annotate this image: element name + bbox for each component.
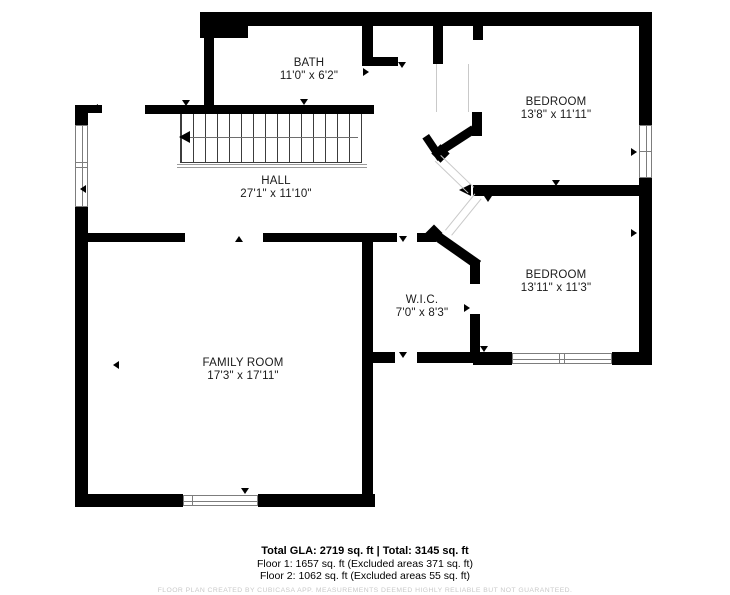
room-label-wic: W.I.C. 7'0" x 8'3" (337, 294, 507, 320)
disclaimer-text: FLOOR PLAN CREATED BY CUBICASA APP. MEAS… (0, 587, 730, 595)
room-name: BEDROOM (471, 269, 641, 282)
wall-bottom-left (75, 494, 183, 507)
wall-hall-bottom-left (88, 233, 185, 242)
wall-stairs-top (145, 105, 374, 114)
window-bedroom1-right (639, 125, 652, 178)
room-dimensions: 13'8" x 11'11" (471, 109, 641, 122)
wall-bedroom1-left-top (473, 26, 483, 40)
staircase-direction-line (186, 137, 358, 138)
room-label-bedroom-top: BEDROOM 13'8" x 11'11" (471, 96, 641, 122)
wall-tick (631, 229, 637, 237)
room-label-bath: BATH 11'0" x 6'2" (224, 57, 394, 83)
window-glass-line (184, 501, 257, 502)
room-name: BATH (224, 57, 394, 70)
staircase-direction-arrow (179, 131, 190, 143)
wall-tick (552, 180, 560, 186)
staircase-edge-line (177, 164, 367, 168)
wall-tick (80, 185, 86, 193)
staircase (180, 114, 362, 163)
window-mullion (76, 167, 87, 168)
window-hall-left (75, 125, 88, 207)
window-mullion (192, 496, 193, 505)
wall-tick (92, 104, 98, 112)
room-label-family-room: FAMILY ROOM 17'3" x 17'11" (158, 357, 328, 383)
room-label-bedroom-middle: BEDROOM 13'11" x 11'3" (471, 269, 641, 295)
wall-tick (301, 17, 309, 23)
room-dimensions: 7'0" x 8'3" (337, 307, 507, 320)
window-glass-line (513, 359, 611, 360)
wall-tick (484, 196, 492, 202)
room-name: BEDROOM (471, 96, 641, 109)
total-area-summary: Total GLA: 2719 sq. ft | Total: 3145 sq.… (0, 545, 730, 558)
wall-tick (399, 352, 407, 358)
room-name: HALL (191, 175, 361, 188)
floor1-area: Floor 1: 1657 sq. ft (Excluded areas 371… (0, 558, 730, 570)
room-name: FAMILY ROOM (158, 357, 328, 370)
wall-corridor-left (433, 26, 443, 64)
window-mullion (559, 354, 560, 363)
window-family-bottom (183, 495, 258, 506)
wall-bedroom2-bottom-left (473, 352, 512, 365)
wall-tick (399, 236, 407, 242)
floor-plan-canvas: BATH 11'0" x 6'2" BEDROOM 13'8" x 11'11"… (0, 0, 730, 595)
window-mullion (640, 151, 651, 152)
wall-bedroom1-bedroom2 (473, 185, 652, 196)
wall-wic-bottom-left (373, 352, 395, 363)
door-opening-corridor (436, 64, 469, 112)
wall-tick (241, 488, 249, 494)
wall-top-left-notch (200, 12, 248, 38)
wall-tick (551, 16, 559, 22)
wall-top (200, 12, 652, 26)
window-bedroom2-bottom (512, 353, 612, 364)
wall-tick (398, 62, 406, 68)
door-opening-bedroom1 (435, 155, 474, 193)
window-glass-line (82, 126, 83, 206)
wall-bottom-right (258, 494, 375, 507)
wall-tick (205, 68, 211, 76)
wall-wic-bottom-right (417, 352, 473, 363)
window-mullion (564, 354, 565, 363)
wall-tick (235, 236, 243, 242)
window-mullion (76, 162, 87, 163)
wall-tick (631, 148, 637, 156)
room-dimensions: 11'0" x 6'2" (224, 70, 394, 83)
footer: Total GLA: 2719 sq. ft | Total: 3145 sq.… (0, 545, 730, 595)
wall-tick (362, 363, 368, 371)
room-label-hall: HALL 27'1" x 11'10" (191, 175, 361, 201)
room-name: W.I.C. (337, 294, 507, 307)
wall-left-lower (75, 207, 88, 507)
wall-tick (182, 100, 190, 106)
wall-hall-bottom-right (263, 233, 363, 242)
wall-tick (480, 346, 488, 352)
wall-tick (300, 99, 308, 105)
floor2-area: Floor 2: 1062 sq. ft (Excluded areas 55 … (0, 570, 730, 582)
wall-wic-top-left (373, 233, 397, 242)
wall-tick (113, 361, 119, 369)
door-opening-bedroom2 (445, 193, 482, 235)
room-dimensions: 27'1" x 11'10" (191, 188, 361, 201)
wall-bedroom2-bottom-right (612, 352, 652, 365)
room-dimensions: 17'3" x 17'11" (158, 370, 328, 383)
